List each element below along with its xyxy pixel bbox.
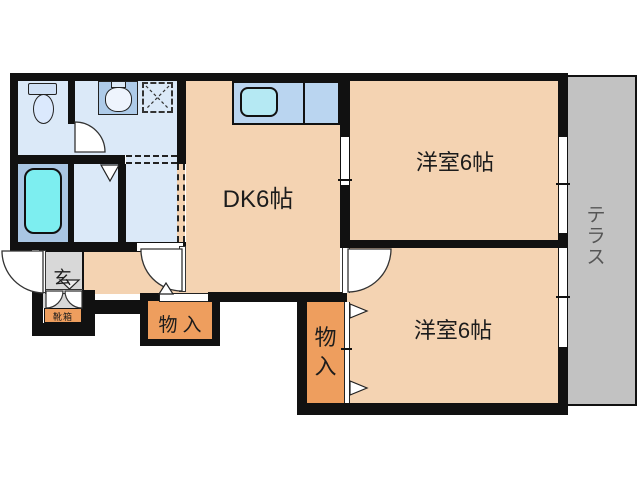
wall-right-1 — [558, 81, 568, 137]
wall-dk-left — [177, 81, 186, 164]
bathtub-icon — [24, 168, 62, 234]
wall-between-bedrooms — [340, 240, 568, 248]
wall-right-2 — [558, 233, 568, 248]
window-bedroom-top-tick — [556, 183, 570, 185]
dk-room-label: DK6帖 — [193, 179, 323, 214]
window-bedroom-top — [558, 137, 568, 233]
wall-bath-right — [68, 164, 74, 242]
washroom-doorway — [137, 242, 183, 252]
toilet-door-gap — [68, 124, 75, 155]
wall-top — [10, 73, 568, 81]
opening-dk-bedroom-top — [340, 137, 350, 185]
wall-hall-bottom — [93, 300, 142, 314]
wall-changing-right — [118, 164, 126, 242]
shoe-cabinet-label: 靴箱 — [44, 310, 82, 323]
opening-dk-tick — [338, 179, 352, 181]
storage-right-label: 物入 — [307, 323, 344, 381]
window-bedroom-bottom-tick — [556, 296, 570, 298]
storage-left-label: 物入 — [148, 310, 212, 337]
storage-right-door-strip — [344, 302, 350, 403]
wall-bottom — [297, 403, 568, 415]
washing-machine-pan-icon — [142, 82, 173, 113]
terrace-label: テラス — [585, 205, 607, 268]
utility-nook-floor — [126, 164, 177, 242]
kitchen-sink-icon — [240, 87, 278, 117]
bedroom-bottom-doorway — [342, 248, 350, 293]
washbasin-bowl-icon — [105, 87, 132, 112]
kitchen-counter-divider — [303, 81, 305, 125]
bedroom-bottom-label: 洋室6帖 — [388, 313, 518, 345]
changing-room-floor — [74, 164, 118, 242]
wall-toilet-right — [68, 81, 75, 124]
wall-dk-bedroom-lower — [340, 185, 350, 248]
dashed-partition-horizontal — [126, 155, 177, 164]
floor-plan-canvas: DK6帖 洋室6帖 洋室6帖 テラス 玄 物入 物入 靴箱 — [0, 0, 640, 480]
entrance-label: 玄 — [43, 264, 82, 290]
entrance-step-line — [82, 252, 84, 290]
wall-dk-bedroom-upper — [340, 81, 350, 137]
wall-dk-bottom — [208, 292, 297, 302]
dashed-partition-vertical — [177, 164, 185, 242]
storage-left-opening — [159, 293, 213, 302]
washbasin-tap-icon — [111, 81, 126, 88]
wall-under-toilet — [10, 155, 125, 164]
washroom-door-leaf — [179, 246, 186, 292]
wall-storage-right-top — [297, 292, 347, 302]
hallway-floor — [84, 252, 210, 294]
bedroom-top-label: 洋室6帖 — [390, 145, 520, 177]
toilet-bowl-icon — [33, 94, 54, 124]
wall-storage-right-left — [297, 292, 307, 415]
